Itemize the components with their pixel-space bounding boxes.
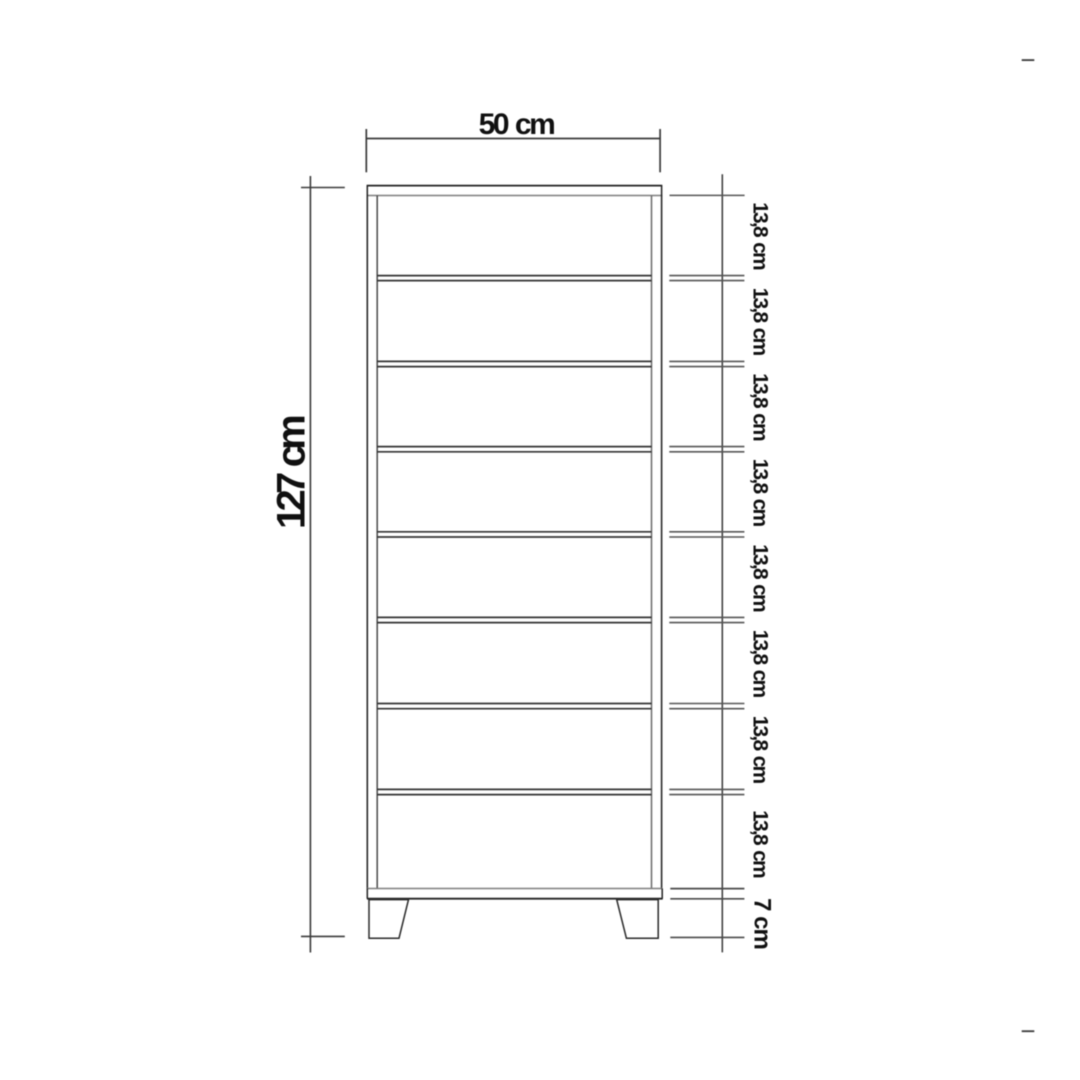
svg-text:7 cm: 7 cm [749, 898, 776, 949]
svg-text:50 cm: 50 cm [479, 108, 555, 141]
svg-text:127 cm: 127 cm [270, 416, 314, 529]
svg-text:13,8 cm: 13,8 cm [749, 630, 772, 698]
svg-text:13,8 cm: 13,8 cm [749, 288, 772, 356]
svg-text:13,8 cm: 13,8 cm [749, 202, 772, 270]
svg-text:13,8 cm: 13,8 cm [749, 810, 772, 878]
svg-text:13,8 cm: 13,8 cm [749, 459, 772, 527]
svg-text:13,8 cm: 13,8 cm [749, 544, 772, 612]
svg-text:13,8 cm: 13,8 cm [749, 373, 772, 441]
svg-text:13,8 cm: 13,8 cm [749, 716, 772, 784]
